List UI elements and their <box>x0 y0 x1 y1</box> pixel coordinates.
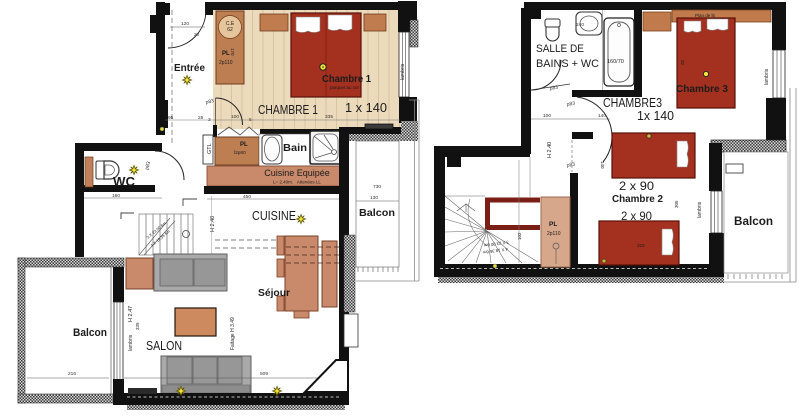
svg-text:20: 20 <box>194 32 200 38</box>
svg-text:140: 140 <box>600 161 605 169</box>
svg-text:323: 323 <box>637 243 645 248</box>
svg-text:62: 62 <box>227 27 233 33</box>
svg-text:CHAMBRE 1: CHAMBRE 1 <box>258 103 318 117</box>
svg-text:2p110: 2p110 <box>219 60 233 66</box>
svg-text:PL: PL <box>240 142 248 148</box>
svg-text:lambris: lambris <box>764 68 770 85</box>
svg-text:160/70: 160/70 <box>607 59 624 65</box>
svg-text:240: 240 <box>576 22 584 28</box>
svg-text:339: 339 <box>135 322 140 330</box>
svg-text:ſ2p80: ſ2p80 <box>234 150 246 156</box>
svg-text:100: 100 <box>231 114 239 120</box>
svg-text:509: 509 <box>260 371 268 377</box>
svg-text:GTL: GTL <box>207 143 213 154</box>
svg-text:parquet au sol: parquet au sol <box>330 85 359 90</box>
svg-text:Faitage H 3.49: Faitage H 3.49 <box>230 317 236 350</box>
svg-text:H 2.40: H 2.40 <box>547 142 553 158</box>
svg-text:1 x 140: 1 x 140 <box>345 101 387 115</box>
svg-text:Cuisine Equipée: Cuisine Equipée <box>264 168 330 178</box>
svg-text:CUISINE: CUISINE <box>252 209 296 223</box>
svg-text:Entrée: Entrée <box>174 62 205 74</box>
svg-text:SALLE DE: SALLE DE <box>536 43 584 55</box>
svg-text:Séjour: Séjour <box>258 287 290 299</box>
svg-text:120: 120 <box>181 21 189 27</box>
svg-text:25: 25 <box>198 115 204 121</box>
svg-text:lambris: lambris <box>697 201 703 218</box>
svg-text:730: 730 <box>373 184 381 190</box>
svg-text:335: 335 <box>325 114 333 120</box>
svg-text:H 2.40: H 2.40 <box>210 216 216 232</box>
svg-text:102: 102 <box>517 232 522 240</box>
svg-text:SALON: SALON <box>146 339 182 353</box>
svg-text:Balcon: Balcon <box>359 207 395 219</box>
svg-text:Plan de lit: Plan de lit <box>695 13 716 18</box>
svg-text:170: 170 <box>230 48 235 56</box>
svg-text:130: 130 <box>370 195 378 201</box>
svg-text:2 x 90: 2 x 90 <box>619 179 654 193</box>
svg-text:1x 140: 1x 140 <box>637 109 674 123</box>
svg-text:216: 216 <box>68 371 76 377</box>
svg-text:PL: PL <box>549 221 557 228</box>
svg-text:L= 2.40m. Attenées LL: L= 2.40m. Attenées LL <box>273 180 321 185</box>
svg-text:Chambre 1: Chambre 1 <box>322 74 371 85</box>
svg-text:lambris: lambris <box>400 63 406 80</box>
svg-text:PL: PL <box>222 51 230 57</box>
svg-text:H 2.47: H 2.47 <box>128 306 134 322</box>
svg-text:lambris: lambris <box>128 334 134 351</box>
svg-text:Balcon: Balcon <box>734 216 773 228</box>
svg-text:BAINS + WC: BAINS + WC <box>536 58 599 70</box>
svg-text:CHAMBRE3: CHAMBRE3 <box>603 96 662 110</box>
svg-text:305: 305 <box>674 200 679 208</box>
svg-text:92: 92 <box>680 60 685 66</box>
svg-text:WC: WC <box>113 175 135 189</box>
svg-text:95: 95 <box>168 115 174 121</box>
svg-text:5: 5 <box>249 117 252 123</box>
svg-text:3: 3 <box>208 117 211 123</box>
svg-text:100: 100 <box>543 113 551 119</box>
svg-text:Chambre 2: Chambre 2 <box>612 194 663 205</box>
svg-text:450: 450 <box>243 194 251 200</box>
svg-text:160: 160 <box>112 193 120 199</box>
svg-text:Chambre 3: Chambre 3 <box>676 84 728 95</box>
svg-text:2p110: 2p110 <box>547 231 561 237</box>
svg-text:Bain: Bain <box>283 142 307 154</box>
svg-text:Balcon: Balcon <box>73 327 107 339</box>
